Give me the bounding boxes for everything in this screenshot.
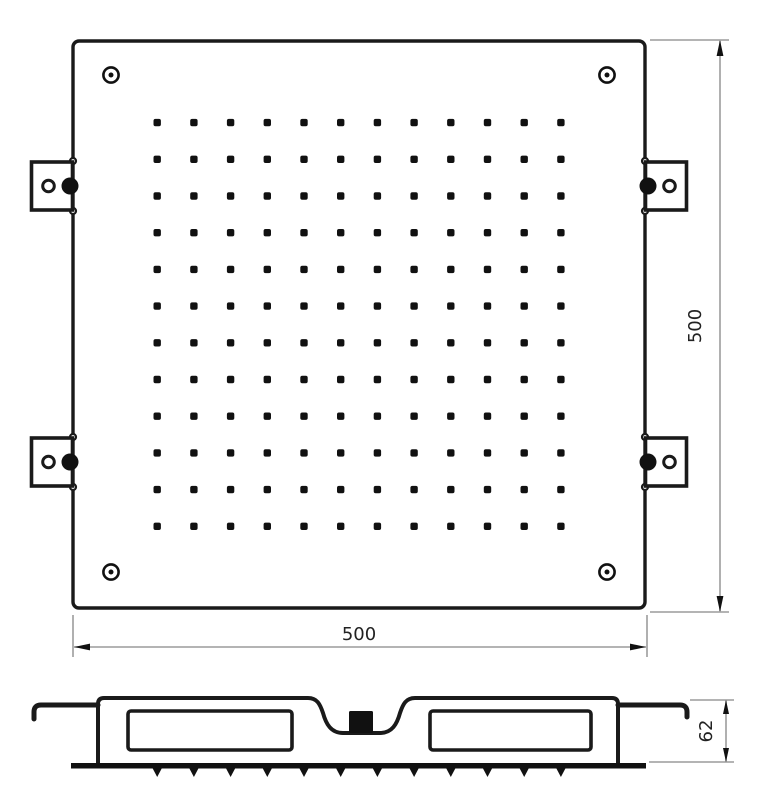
face-plate-baseline bbox=[71, 763, 646, 769]
nozzle-tick bbox=[483, 769, 492, 778]
nozzle-dot bbox=[484, 376, 491, 383]
nozzle-dot bbox=[227, 302, 234, 309]
arrowhead-right-icon bbox=[630, 644, 646, 651]
dimension-label-height: 500 bbox=[685, 309, 706, 343]
nozzle-dot bbox=[190, 339, 197, 346]
nozzle-dot bbox=[190, 302, 197, 309]
nozzle-dot bbox=[154, 192, 161, 199]
nozzle-dot bbox=[410, 413, 417, 420]
nozzle-dot bbox=[227, 486, 234, 493]
bracket-hole bbox=[43, 180, 55, 192]
nozzle-dot bbox=[484, 486, 491, 493]
drawing-svg: 500 500 bbox=[0, 0, 778, 800]
nozzle-tick bbox=[189, 769, 198, 778]
nozzle-dot bbox=[300, 486, 307, 493]
nozzle-dot bbox=[264, 156, 271, 163]
nozzle-dot bbox=[484, 523, 491, 530]
nozzle-dot bbox=[521, 192, 528, 199]
nozzle-dot bbox=[557, 523, 564, 530]
nozzle-dot bbox=[190, 229, 197, 236]
bracket-hole bbox=[43, 456, 55, 468]
nozzle-dot bbox=[410, 229, 417, 236]
nozzle-dot bbox=[410, 156, 417, 163]
nozzle-tick bbox=[446, 769, 455, 778]
dimension-profile-height: 62 bbox=[649, 700, 734, 762]
nozzle-dot bbox=[227, 266, 234, 273]
nozzle-dot bbox=[300, 266, 307, 273]
nozzle-dot bbox=[557, 119, 564, 126]
nozzle-dot bbox=[484, 266, 491, 273]
arrowhead-down-icon bbox=[723, 748, 729, 762]
nozzle-dot bbox=[154, 302, 161, 309]
nozzle-dot bbox=[300, 449, 307, 456]
nozzle-dot bbox=[374, 339, 381, 346]
nozzle-dot bbox=[374, 229, 381, 236]
nozzle-dot bbox=[337, 156, 344, 163]
nozzle-dot bbox=[337, 376, 344, 383]
nozzle-dot bbox=[557, 302, 564, 309]
nozzle-tick bbox=[153, 769, 162, 778]
nozzle-dot bbox=[557, 156, 564, 163]
nozzle-dot bbox=[374, 486, 381, 493]
nozzle-dot bbox=[300, 156, 307, 163]
nozzle-dot bbox=[410, 266, 417, 273]
nozzle-dot bbox=[337, 523, 344, 530]
nozzle-tick bbox=[263, 769, 272, 778]
nozzle-dot bbox=[447, 266, 454, 273]
dimension-label-width: 500 bbox=[342, 624, 376, 645]
nozzle-dot bbox=[227, 119, 234, 126]
nozzle-dot bbox=[264, 486, 271, 493]
nozzle-dot bbox=[374, 266, 381, 273]
nozzle-dot bbox=[227, 376, 234, 383]
nozzle-dot bbox=[154, 413, 161, 420]
nozzle-dot bbox=[521, 302, 528, 309]
bracket-pin bbox=[62, 454, 79, 471]
nozzle-dot bbox=[521, 119, 528, 126]
nozzle-dot bbox=[300, 119, 307, 126]
nozzle-dot bbox=[337, 302, 344, 309]
nozzle-dot bbox=[264, 339, 271, 346]
nozzle-dot bbox=[300, 413, 307, 420]
bracket-pin bbox=[640, 454, 657, 471]
nozzle-dot bbox=[484, 302, 491, 309]
nozzle-dot bbox=[374, 119, 381, 126]
nozzle-dot bbox=[337, 266, 344, 273]
bracket-pin bbox=[640, 178, 657, 195]
nozzle-dot bbox=[521, 229, 528, 236]
bracket-hole bbox=[664, 180, 676, 192]
nozzle-dot bbox=[447, 229, 454, 236]
nozzle-dot bbox=[154, 156, 161, 163]
nozzle-dot bbox=[521, 413, 528, 420]
nozzle-dot bbox=[557, 413, 564, 420]
nozzle-dot bbox=[190, 523, 197, 530]
nozzle-dot bbox=[227, 523, 234, 530]
dimension-plate-width: 500 bbox=[73, 615, 647, 657]
nozzle-dot bbox=[374, 413, 381, 420]
nozzle-dot bbox=[410, 119, 417, 126]
arrowhead-down-icon bbox=[717, 596, 724, 612]
nozzle-dot bbox=[337, 339, 344, 346]
nozzle-dot bbox=[557, 376, 564, 383]
nozzle-dot bbox=[557, 486, 564, 493]
nozzle-dot bbox=[154, 376, 161, 383]
nozzle-dot bbox=[557, 229, 564, 236]
nozzle-dot bbox=[190, 376, 197, 383]
nozzle-dot bbox=[264, 302, 271, 309]
nozzle-dot bbox=[337, 449, 344, 456]
bracket-hole bbox=[664, 456, 676, 468]
mounting-bracket-left-top bbox=[32, 158, 79, 214]
arrowhead-up-icon bbox=[723, 700, 729, 714]
nozzle-dot bbox=[300, 192, 307, 199]
nozzle-dot bbox=[447, 486, 454, 493]
nozzle-dot bbox=[484, 413, 491, 420]
nozzle-dot bbox=[557, 339, 564, 346]
nozzle-dot bbox=[337, 229, 344, 236]
nozzle-tick bbox=[336, 769, 345, 778]
nozzle-tick bbox=[556, 769, 565, 778]
mounting-hook-left bbox=[34, 705, 98, 719]
arrowhead-left-icon bbox=[74, 644, 90, 651]
nozzle-dot bbox=[374, 523, 381, 530]
nozzle-dot bbox=[521, 156, 528, 163]
nozzle-dot bbox=[447, 339, 454, 346]
nozzle-dot bbox=[190, 486, 197, 493]
nozzle-dot bbox=[300, 302, 307, 309]
nozzle-dot bbox=[521, 449, 528, 456]
top-view: 500 500 bbox=[32, 40, 730, 657]
nozzle-dot bbox=[447, 376, 454, 383]
nozzle-dot bbox=[557, 449, 564, 456]
dimension-plate-height: 500 bbox=[650, 40, 729, 612]
nozzle-tick bbox=[300, 769, 309, 778]
nozzle-dot bbox=[227, 192, 234, 199]
nozzle-dot bbox=[190, 413, 197, 420]
nozzle-dot bbox=[264, 266, 271, 273]
nozzle-tick bbox=[373, 769, 382, 778]
nozzle-dot bbox=[484, 449, 491, 456]
nozzle-dot bbox=[190, 192, 197, 199]
nozzle-dot bbox=[227, 339, 234, 346]
nozzle-dot bbox=[410, 339, 417, 346]
nozzle-dot bbox=[410, 486, 417, 493]
nozzle-dot bbox=[264, 523, 271, 530]
nozzle-dot bbox=[190, 156, 197, 163]
nozzle-dot bbox=[410, 523, 417, 530]
nozzle-dot bbox=[484, 192, 491, 199]
nozzle-dot bbox=[557, 192, 564, 199]
nozzle-ticks bbox=[153, 769, 566, 778]
nozzle-dot bbox=[337, 119, 344, 126]
nozzle-dot bbox=[300, 376, 307, 383]
nozzle-dot bbox=[484, 229, 491, 236]
nozzle-dot bbox=[264, 413, 271, 420]
nozzle-dot bbox=[154, 229, 161, 236]
inlet-connector bbox=[349, 711, 373, 733]
nozzle-dot bbox=[337, 192, 344, 199]
nozzle-dot bbox=[374, 192, 381, 199]
nozzle-dot bbox=[410, 302, 417, 309]
nozzle-dot bbox=[484, 119, 491, 126]
nozzle-dot bbox=[227, 229, 234, 236]
nozzle-dot bbox=[337, 413, 344, 420]
nozzle-dot bbox=[300, 339, 307, 346]
nozzle-tick bbox=[410, 769, 419, 778]
nozzle-dot bbox=[300, 229, 307, 236]
mounting-hook-right bbox=[618, 705, 687, 717]
nozzle-tick bbox=[226, 769, 235, 778]
nozzle-dot bbox=[521, 376, 528, 383]
nozzle-dot bbox=[154, 523, 161, 530]
nozzle-dot bbox=[264, 376, 271, 383]
nozzle-dot bbox=[190, 266, 197, 273]
nozzle-dot bbox=[447, 523, 454, 530]
nozzle-dot bbox=[264, 119, 271, 126]
nozzle-dot bbox=[484, 339, 491, 346]
nozzle-dot bbox=[410, 376, 417, 383]
nozzle-dot bbox=[410, 449, 417, 456]
nozzle-dot bbox=[447, 449, 454, 456]
nozzle-dot bbox=[154, 119, 161, 126]
nozzle-dot bbox=[521, 339, 528, 346]
nozzle-dot bbox=[447, 413, 454, 420]
bracket-pin bbox=[62, 178, 79, 195]
nozzle-dot bbox=[374, 376, 381, 383]
nozzle-dot bbox=[374, 449, 381, 456]
nozzle-dot bbox=[557, 266, 564, 273]
nozzle-tick bbox=[520, 769, 529, 778]
nozzle-dot bbox=[521, 486, 528, 493]
nozzle-dot bbox=[447, 119, 454, 126]
nozzle-dot bbox=[447, 302, 454, 309]
nozzle-dot bbox=[337, 486, 344, 493]
nozzle-dot bbox=[154, 266, 161, 273]
nozzle-dot bbox=[227, 449, 234, 456]
nozzle-dot bbox=[227, 156, 234, 163]
side-view: 62 bbox=[34, 698, 734, 777]
arrowhead-up-icon bbox=[717, 40, 724, 56]
nozzle-dot bbox=[410, 192, 417, 199]
mounting-bracket-left-bottom bbox=[32, 434, 79, 490]
nozzle-dot bbox=[154, 486, 161, 493]
mounting-bracket-right-top bbox=[640, 158, 687, 214]
nozzle-dot bbox=[300, 523, 307, 530]
nozzle-dot bbox=[484, 156, 491, 163]
mounting-bracket-right-bottom bbox=[640, 434, 687, 490]
nozzle-dot bbox=[190, 449, 197, 456]
nozzle-dot bbox=[154, 339, 161, 346]
technical-drawing-shower-head: 500 500 bbox=[0, 0, 778, 800]
nozzle-dot bbox=[521, 266, 528, 273]
nozzle-dot bbox=[154, 449, 161, 456]
nozzle-dot bbox=[521, 523, 528, 530]
nozzle-dot bbox=[264, 192, 271, 199]
nozzle-dot bbox=[227, 413, 234, 420]
nozzle-dot bbox=[190, 119, 197, 126]
nozzle-dot bbox=[447, 156, 454, 163]
nozzle-dot bbox=[374, 156, 381, 163]
nozzle-dot bbox=[447, 192, 454, 199]
dimension-label-profile-height: 62 bbox=[696, 720, 717, 743]
nozzle-dot bbox=[264, 449, 271, 456]
nozzle-dot bbox=[264, 229, 271, 236]
nozzle-dot bbox=[374, 302, 381, 309]
